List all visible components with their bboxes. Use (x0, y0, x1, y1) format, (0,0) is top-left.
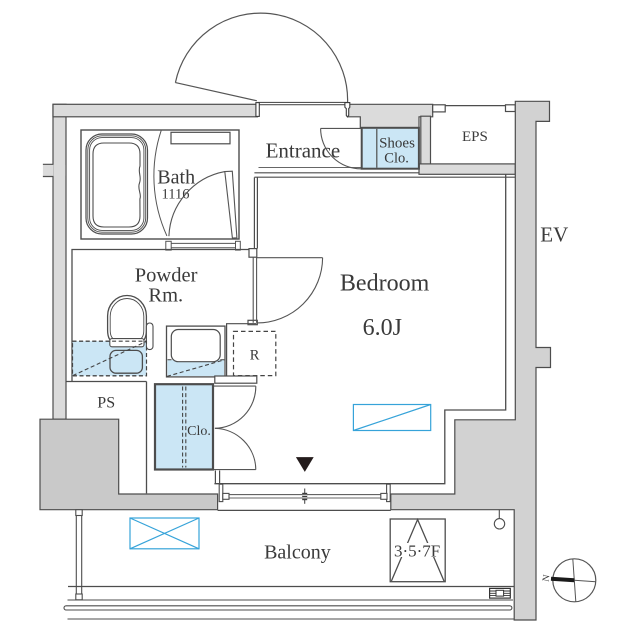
svg-text:EPS: EPS (462, 129, 488, 145)
svg-text:Rm.: Rm. (148, 284, 183, 306)
svg-text:PS: PS (97, 395, 115, 412)
svg-text:Shoes: Shoes (379, 135, 415, 151)
svg-text:6.0J: 6.0J (363, 315, 402, 341)
svg-text:Balcony: Balcony (264, 542, 331, 564)
svg-text:Clo.: Clo. (384, 150, 409, 166)
svg-text:Entrance: Entrance (266, 139, 341, 163)
svg-text:Clo.: Clo. (187, 424, 211, 439)
svg-text:1116: 1116 (162, 187, 190, 203)
svg-text:EV: EV (540, 222, 568, 246)
svg-text:Bath: Bath (157, 166, 195, 188)
svg-text:Bedroom: Bedroom (340, 271, 430, 297)
svg-text:R: R (250, 348, 260, 364)
svg-text:Powder: Powder (135, 264, 198, 286)
svg-text:3·5·7F: 3·5·7F (394, 542, 440, 561)
